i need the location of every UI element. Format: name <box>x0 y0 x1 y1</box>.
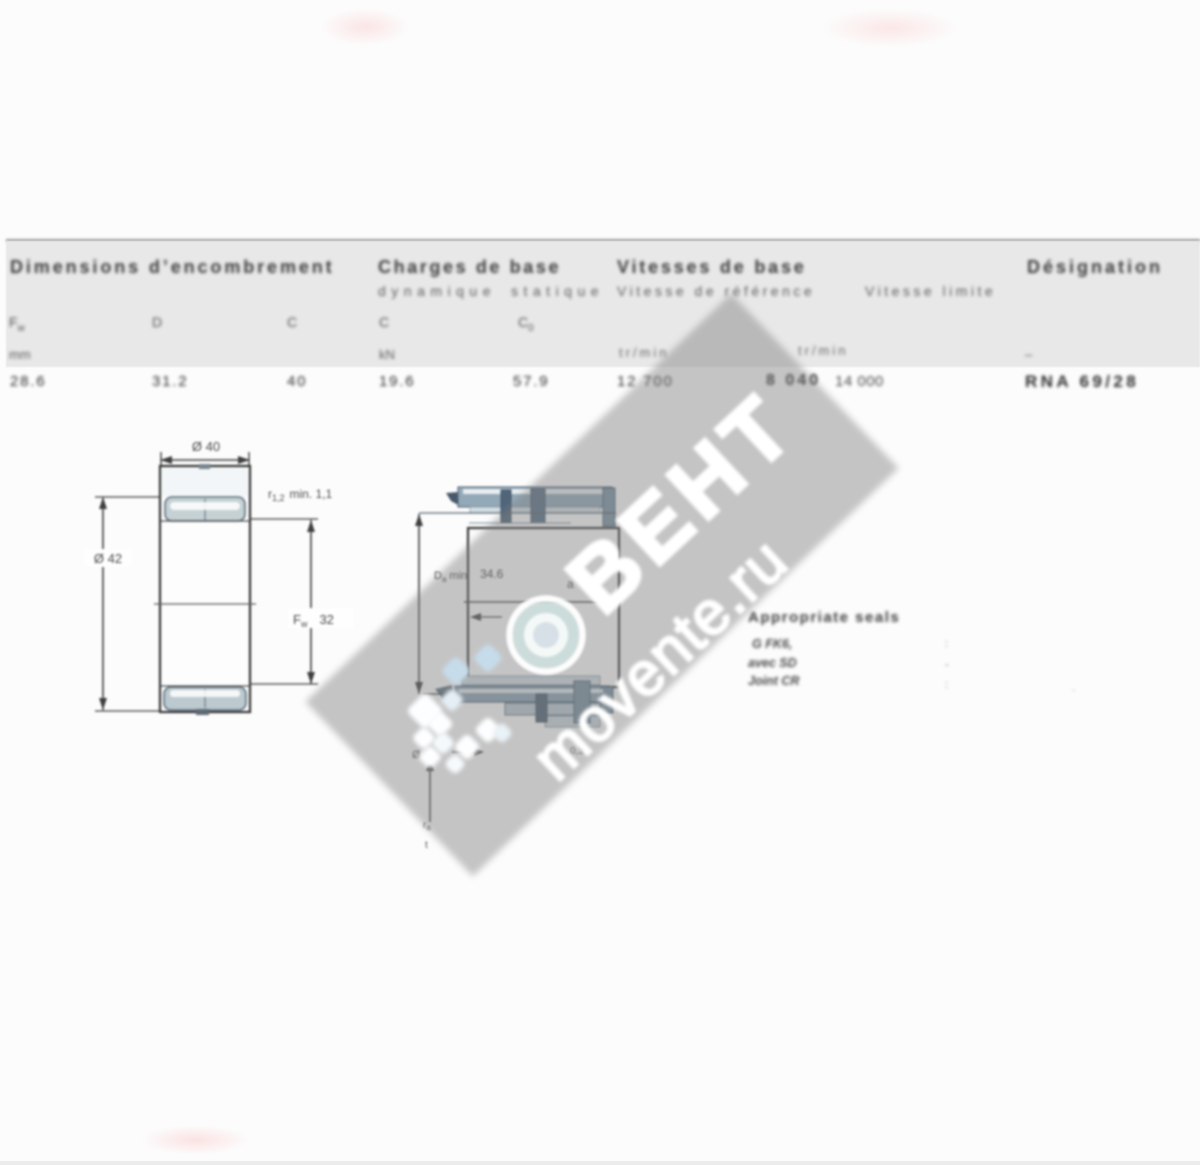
svg-text:Ø 40: Ø 40 <box>192 439 220 454</box>
svg-text:r1,2min. 1,1: r1,2min. 1,1 <box>268 487 333 503</box>
svg-text:Ø 42: Ø 42 <box>94 551 122 566</box>
svg-text:t: t <box>425 840 428 851</box>
